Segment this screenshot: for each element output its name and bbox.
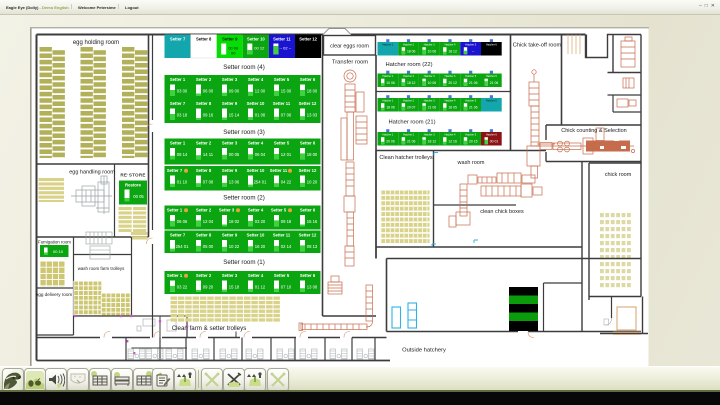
svg-text:Setter 1: Setter 1 — [167, 273, 183, 278]
svg-text:18 02: 18 02 — [229, 219, 240, 224]
svg-text:Hatcher 6: Hatcher 6 — [486, 43, 497, 46]
svg-text:Hatcher 6: Hatcher 6 — [486, 133, 497, 136]
svg-text:Setter 8: Setter 8 — [196, 168, 212, 173]
svg-text:15 16: 15 16 — [307, 219, 318, 224]
svg-text:Setter 11: Setter 11 — [273, 37, 291, 42]
svg-text:Hatcher 4: Hatcher 4 — [445, 43, 456, 46]
svg-text:13 08: 13 08 — [307, 285, 318, 290]
svg-text:Hatcher 1: Hatcher 1 — [382, 99, 393, 102]
svg-text:07 10: 07 10 — [281, 285, 292, 290]
svg-text:Setter 12: Setter 12 — [299, 37, 317, 42]
svg-text:Hatcher 3: Hatcher 3 — [424, 133, 435, 136]
svg-text:RE·STORE: RE·STORE — [120, 173, 145, 178]
svg-text:Setter 3: Setter 3 — [222, 273, 238, 278]
svg-text:Setter 5: Setter 5 — [274, 77, 290, 82]
svg-text:Setter 6: Setter 6 — [300, 273, 316, 278]
svg-text:Setter 4: Setter 4 — [248, 141, 264, 146]
svg-text:egg holding room: egg holding room — [73, 40, 119, 46]
svg-text:Setter 7: Setter 7 — [170, 101, 186, 106]
svg-text:18 06: 18 06 — [407, 50, 416, 54]
svg-text:Hatcher 6: Hatcher 6 — [486, 75, 497, 78]
svg-text:Setter 5: Setter 5 — [271, 208, 287, 213]
svg-text:14 11: 14 11 — [203, 152, 214, 157]
svg-text:Setter 1: Setter 1 — [167, 208, 183, 213]
svg-text:12 04: 12 04 — [203, 219, 214, 224]
svg-text:Setter room (2): Setter room (2) — [223, 195, 265, 202]
svg-text:Hatcher 3: Hatcher 3 — [424, 75, 435, 78]
svg-text:Setter 2: Setter 2 — [196, 141, 212, 146]
svg-text:Setter 7: Setter 7 — [167, 168, 183, 173]
svg-text:20 15: 20 15 — [469, 140, 478, 144]
svg-text:00 01: 00 01 — [490, 140, 499, 144]
svg-text:254 01: 254 01 — [254, 180, 267, 185]
svg-text:egg handling room: egg handling room — [69, 170, 115, 176]
svg-text:Setter 6: Setter 6 — [300, 77, 316, 82]
svg-text:Setter room (1): Setter room (1) — [223, 259, 265, 266]
svg-text:Setter 4: Setter 4 — [248, 77, 264, 82]
svg-text:00 05: 00 05 — [229, 152, 240, 157]
svg-text:07 06: 07 06 — [281, 113, 292, 118]
svg-text:18 12: 18 12 — [407, 81, 416, 85]
svg-text:Hatcher 2: Hatcher 2 — [403, 133, 414, 136]
svg-text:12 00: 12 00 — [255, 89, 266, 94]
svg-text:Chick counting & Selection: Chick counting & Selection — [561, 128, 626, 134]
svg-text:15 14: 15 14 — [229, 113, 240, 118]
svg-text:18 12: 18 12 — [448, 50, 457, 54]
svg-text:Setter 5: Setter 5 — [274, 141, 290, 146]
svg-text:Hatcher 5: Hatcher 5 — [465, 99, 476, 102]
svg-text:01 12: 01 12 — [255, 285, 266, 290]
svg-text:Setter 4: Setter 4 — [248, 208, 264, 213]
svg-text:Setter 10: Setter 10 — [247, 233, 265, 238]
svg-text:Hatcher 4: Hatcher 4 — [445, 133, 456, 136]
svg-text:Hatcher 6: Hatcher 6 — [486, 99, 497, 102]
svg-text:Setter 3: Setter 3 — [219, 208, 235, 213]
svg-text:Setter 5: Setter 5 — [274, 273, 290, 278]
svg-text:08 14: 08 14 — [177, 152, 188, 157]
svg-text:12 01: 12 01 — [281, 152, 292, 157]
svg-text:Hatcher 2: Hatcher 2 — [403, 99, 414, 102]
svg-text:10 22: 10 22 — [229, 244, 240, 249]
svg-text:Restore: Restore — [125, 183, 142, 188]
svg-text:00: 00 — [231, 51, 236, 56]
svg-text:Setter 12: Setter 12 — [299, 233, 317, 238]
svg-text:Hatcher 5: Hatcher 5 — [465, 43, 476, 46]
svg-text:Setter 12: Setter 12 — [299, 101, 317, 106]
svg-text:Hatcher room (21): Hatcher room (21) — [388, 120, 435, 126]
svg-text:Hatcher 3: Hatcher 3 — [424, 99, 435, 102]
svg-text:21 06: 21 06 — [428, 106, 437, 110]
svg-text:03 22: 03 22 — [177, 285, 188, 290]
svg-text:13 06: 13 06 — [229, 180, 240, 185]
svg-text:wash room: wash room — [457, 160, 485, 166]
svg-text:--: -- — [472, 50, 474, 54]
svg-text:Setter 7: Setter 7 — [170, 233, 186, 238]
svg-text:Clean hatcher trolleys: Clean hatcher trolleys — [379, 155, 432, 161]
svg-text:Setter 7: Setter 7 — [170, 37, 186, 42]
svg-text:Setter 9: Setter 9 — [222, 168, 238, 173]
svg-text:07 08: 07 08 — [203, 180, 214, 185]
svg-text:Setter 10: Setter 10 — [247, 101, 265, 106]
svg-text:21 06: 21 06 — [469, 81, 478, 85]
svg-text:08 13: 08 13 — [307, 244, 318, 249]
svg-text:Setter 4: Setter 4 — [248, 273, 264, 278]
svg-text:01 10: 01 10 — [177, 180, 188, 185]
svg-text:Setter 1: Setter 1 — [170, 141, 186, 146]
svg-text:20 07: 20 07 — [407, 106, 416, 110]
svg-text:03 20: 03 20 — [255, 219, 266, 224]
svg-text:Hatcher 2: Hatcher 2 — [403, 43, 414, 46]
svg-text:21 06: 21 06 — [407, 140, 416, 144]
svg-text:Fumigation room: Fumigation room — [38, 240, 71, 245]
svg-text:Hatcher 4: Hatcher 4 — [445, 75, 456, 78]
svg-text:Setter 8: Setter 8 — [196, 101, 212, 106]
svg-text:Setter 1: Setter 1 — [170, 77, 186, 82]
svg-text:00 05: 00 05 — [133, 194, 144, 199]
svg-text:09 20: 09 20 — [203, 285, 214, 290]
svg-text:12 16: 12 16 — [448, 140, 457, 144]
svg-text:Setter 8: Setter 8 — [196, 233, 212, 238]
svg-text:Chick take-off room: Chick take-off room — [513, 43, 562, 49]
svg-text:chick room: chick room — [605, 172, 632, 178]
svg-text:16 20: 16 20 — [255, 244, 266, 249]
svg-text:Setter 8: Setter 8 — [196, 37, 212, 42]
svg-text:Hatcher 4: Hatcher 4 — [445, 99, 456, 102]
svg-text:Setter 10: Setter 10 — [247, 168, 265, 173]
svg-text:10 20: 10 20 — [307, 180, 318, 185]
svg-text:clean chick boxes: clean chick boxes — [480, 209, 524, 215]
svg-text:Setter room (4): Setter room (4) — [223, 64, 265, 71]
svg-text:00 12: 00 12 — [254, 46, 265, 51]
svg-text:Setter 3: Setter 3 — [222, 141, 238, 146]
svg-text:03 18: 03 18 — [177, 113, 188, 118]
svg-text:Setter 11: Setter 11 — [273, 233, 291, 238]
svg-text:00 10: 00 10 — [53, 249, 64, 254]
svg-text:Hatcher 2: Hatcher 2 — [403, 75, 414, 78]
svg-text:09 18: 09 18 — [281, 219, 292, 224]
svg-text:Transfer room: Transfer room — [332, 60, 368, 66]
svg-text:clear eggs room: clear eggs room — [330, 44, 369, 50]
svg-text:21 06: 21 06 — [490, 81, 499, 85]
svg-text:18 12: 18 12 — [428, 140, 437, 144]
svg-text:06 06: 06 06 — [177, 219, 188, 224]
svg-text:Setter 11: Setter 11 — [273, 101, 291, 106]
svg-text:Hatcher 3: Hatcher 3 — [424, 43, 435, 46]
svg-text:01 08: 01 08 — [255, 113, 266, 118]
svg-text:Setter 3: Setter 3 — [222, 77, 238, 82]
svg-text:18 00: 18 00 — [307, 152, 318, 157]
svg-text:Hatcher room (22): Hatcher room (22) — [385, 62, 432, 68]
svg-text:Setter 6: Setter 6 — [300, 141, 316, 146]
svg-text:03 00: 03 00 — [177, 89, 188, 94]
svg-text:10 06: 10 06 — [428, 50, 437, 54]
svg-text:18 05: 18 05 — [448, 106, 457, 110]
svg-text:20 12: 20 12 — [448, 81, 457, 85]
svg-text:18 00: 18 00 — [307, 89, 318, 94]
svg-text:06 00: 06 00 — [203, 89, 214, 94]
svg-text:Setter room (3): Setter room (3) — [223, 129, 265, 136]
svg-text:Setter 9: Setter 9 — [222, 233, 238, 238]
svg-text:Setter 2: Setter 2 — [196, 77, 212, 82]
svg-text:Hatcher 5: Hatcher 5 — [465, 133, 476, 136]
svg-text:egg delivery room: egg delivery room — [36, 292, 73, 297]
svg-text:Setter 12: Setter 12 — [299, 168, 317, 173]
svg-text:21 06: 21 06 — [469, 106, 478, 110]
svg-text:Setter 11: Setter 11 — [270, 168, 288, 173]
svg-text:Hatcher 1: Hatcher 1 — [382, 43, 393, 46]
svg-text:wash room farm trolleys: wash room farm trolleys — [78, 266, 125, 271]
svg-text:Setter 9: Setter 9 — [222, 101, 238, 106]
svg-text:Setter 9: Setter 9 — [222, 37, 238, 42]
svg-text:15 18: 15 18 — [229, 285, 240, 290]
svg-text:20 06: 20 06 — [386, 140, 395, 144]
svg-text:Outside hatchery: Outside hatchery — [402, 348, 446, 354]
svg-text:02 14: 02 14 — [281, 244, 292, 249]
svg-text:Clean farm & setter trolleys: Clean farm & setter trolleys — [172, 325, 247, 332]
svg-text:Hatcher 5: Hatcher 5 — [465, 75, 476, 78]
svg-text:Hatcher 1: Hatcher 1 — [382, 133, 393, 136]
svg-text:09 00: 09 00 — [229, 89, 240, 94]
svg-text:05 00: 05 00 — [203, 244, 214, 249]
svg-text:10 06: 10 06 — [428, 81, 437, 85]
svg-text:Setter 2: Setter 2 — [196, 273, 212, 278]
svg-text:18 06: 18 06 — [386, 106, 395, 110]
svg-text:13 03: 13 03 — [307, 113, 318, 118]
svg-text:15 00: 15 00 — [281, 89, 292, 94]
svg-text:09 16: 09 16 — [203, 113, 214, 118]
svg-text:06 04: 06 04 — [255, 152, 266, 157]
svg-text:Setter 2: Setter 2 — [196, 208, 212, 213]
svg-text:10 06: 10 06 — [386, 81, 395, 85]
svg-text:Hatcher 1: Hatcher 1 — [382, 75, 393, 78]
svg-text:Setter 10: Setter 10 — [247, 37, 265, 42]
svg-text:Setter 6: Setter 6 — [300, 208, 316, 213]
svg-text:04 22: 04 22 — [281, 180, 292, 185]
svg-text:-- 02 --: -- 02 -- — [279, 46, 292, 51]
svg-text:254 01: 254 01 — [176, 244, 189, 249]
